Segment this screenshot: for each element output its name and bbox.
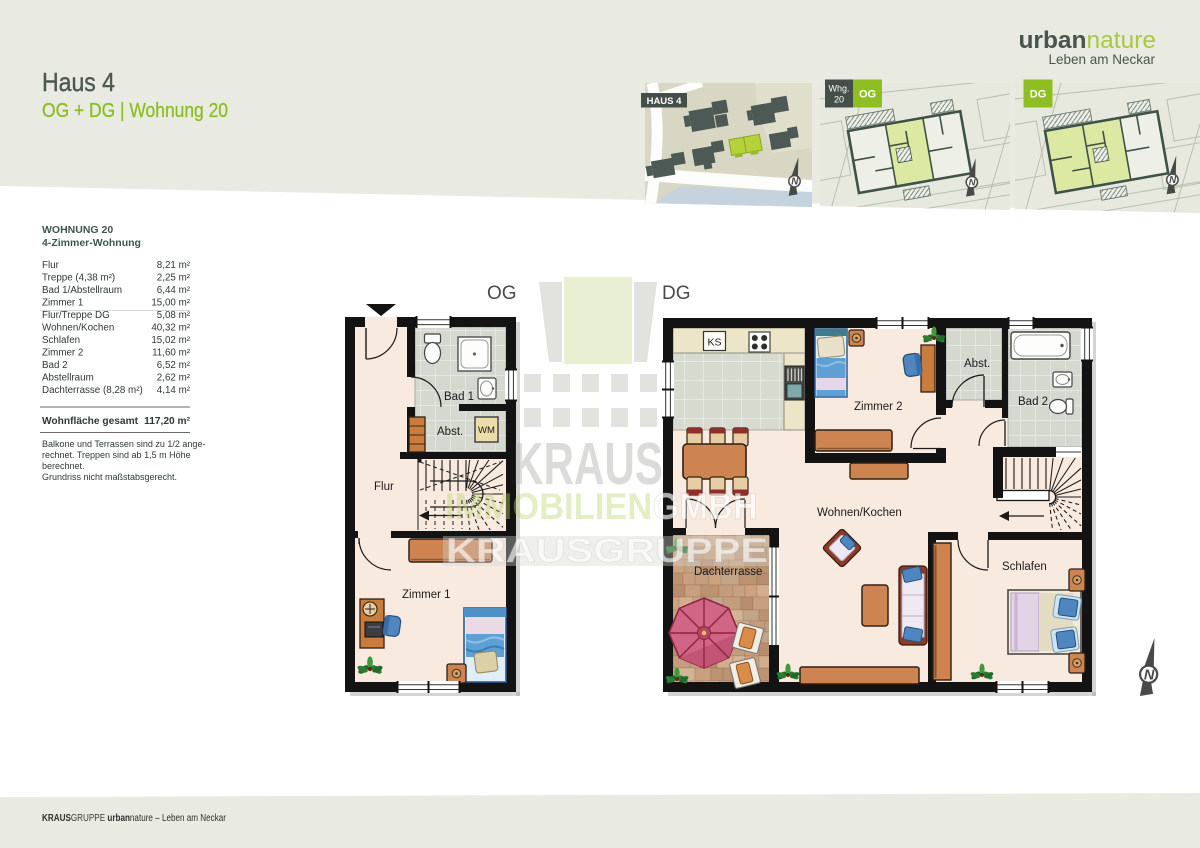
svg-text:OG: OG bbox=[487, 283, 517, 304]
svg-text:HAUS 4: HAUS 4 bbox=[647, 96, 683, 107]
svg-text:WM: WM bbox=[478, 425, 495, 436]
svg-text:11,60 m²: 11,60 m² bbox=[152, 348, 191, 359]
svg-text:urbannature: urbannature bbox=[1018, 27, 1156, 54]
svg-text:4,14 m²: 4,14 m² bbox=[157, 385, 191, 396]
svg-text:Zimmer 2: Zimmer 2 bbox=[854, 401, 903, 413]
svg-text:Zimmer 1: Zimmer 1 bbox=[402, 589, 451, 601]
svg-text:Schlafen: Schlafen bbox=[1002, 561, 1047, 573]
svg-text:IMMOBILIENGMBH: IMMOBILIENGMBH bbox=[445, 486, 758, 527]
svg-text:Bad 2: Bad 2 bbox=[42, 360, 68, 371]
svg-text:117,20 m²: 117,20 m² bbox=[144, 416, 190, 427]
svg-text:Dachterrasse (8,28 m²): Dachterrasse (8,28 m²) bbox=[42, 385, 143, 396]
svg-text:Treppe (4,38 m²): Treppe (4,38 m²) bbox=[42, 273, 115, 284]
svg-text:Zimmer 2: Zimmer 2 bbox=[42, 348, 83, 359]
svg-text:40,32 m²: 40,32 m² bbox=[151, 323, 190, 334]
svg-text:15,02 m²: 15,02 m² bbox=[151, 335, 190, 346]
svg-text:6,44 m²: 6,44 m² bbox=[157, 285, 191, 296]
svg-text:Wohnen/Kochen: Wohnen/Kochen bbox=[817, 507, 902, 519]
svg-text:Abst.: Abst. bbox=[437, 426, 463, 438]
svg-text:OG + DG | Wohnung 20: OG + DG | Wohnung 20 bbox=[42, 100, 228, 122]
svg-text:Flur: Flur bbox=[374, 481, 394, 493]
svg-text:DG: DG bbox=[1030, 89, 1047, 101]
svg-text:Abst.: Abst. bbox=[964, 358, 990, 370]
svg-text:berechnet.: berechnet. bbox=[42, 461, 85, 471]
svg-text:Bad 1/Abstellraum: Bad 1/Abstellraum bbox=[42, 285, 122, 296]
svg-text:Zimmer 1: Zimmer 1 bbox=[42, 298, 83, 309]
svg-text:Flur/Treppe DG: Flur/Treppe DG bbox=[42, 310, 110, 321]
svg-text:Bad 2: Bad 2 bbox=[1018, 396, 1048, 408]
svg-text:KS: KS bbox=[707, 337, 721, 349]
svg-text:4-Zimmer-Wohnung: 4-Zimmer-Wohnung bbox=[42, 237, 141, 249]
svg-text:Whg.: Whg. bbox=[828, 84, 849, 94]
svg-text:Haus 4: Haus 4 bbox=[42, 67, 115, 97]
svg-text:KRAUSGRUPPE urbannature – Lebe: KRAUSGRUPPE urbannature – Leben am Necka… bbox=[42, 813, 227, 824]
svg-text:Grundriss nicht maßstabsgerech: Grundriss nicht maßstabsgerecht. bbox=[42, 472, 177, 482]
svg-text:Leben am Neckar: Leben am Neckar bbox=[1048, 52, 1155, 67]
svg-text:Wohnen/Kochen: Wohnen/Kochen bbox=[42, 323, 114, 334]
svg-text:Flur: Flur bbox=[42, 260, 60, 271]
svg-text:Wohnfläche gesamt: Wohnfläche gesamt bbox=[42, 416, 139, 427]
svg-text:Schlafen: Schlafen bbox=[42, 335, 80, 346]
svg-text:WOHNUNG 20: WOHNUNG 20 bbox=[42, 224, 113, 236]
svg-text:20: 20 bbox=[834, 95, 844, 105]
svg-text:rechnet. Treppen sind ab 1,5 m: rechnet. Treppen sind ab 1,5 m Höhe bbox=[42, 450, 191, 460]
svg-text:2,62 m²: 2,62 m² bbox=[157, 373, 191, 384]
svg-text:DG: DG bbox=[662, 283, 691, 304]
svg-text:5,08 m²: 5,08 m² bbox=[157, 310, 191, 321]
svg-text:OG: OG bbox=[859, 89, 876, 101]
svg-text:Abstellraum: Abstellraum bbox=[42, 373, 94, 384]
svg-text:6,52 m²: 6,52 m² bbox=[157, 360, 191, 371]
svg-text:KRAUSGRUPPE: KRAUSGRUPPE bbox=[446, 532, 768, 570]
svg-text:15,00 m²: 15,00 m² bbox=[151, 298, 190, 309]
svg-text:8,21 m²: 8,21 m² bbox=[157, 260, 191, 271]
svg-text:Bad 1: Bad 1 bbox=[444, 391, 474, 403]
svg-text:Balkone und Terrassen sind zu: Balkone und Terrassen sind zu 1/2 ange- bbox=[42, 439, 205, 449]
svg-text:2,25 m²: 2,25 m² bbox=[157, 273, 191, 284]
